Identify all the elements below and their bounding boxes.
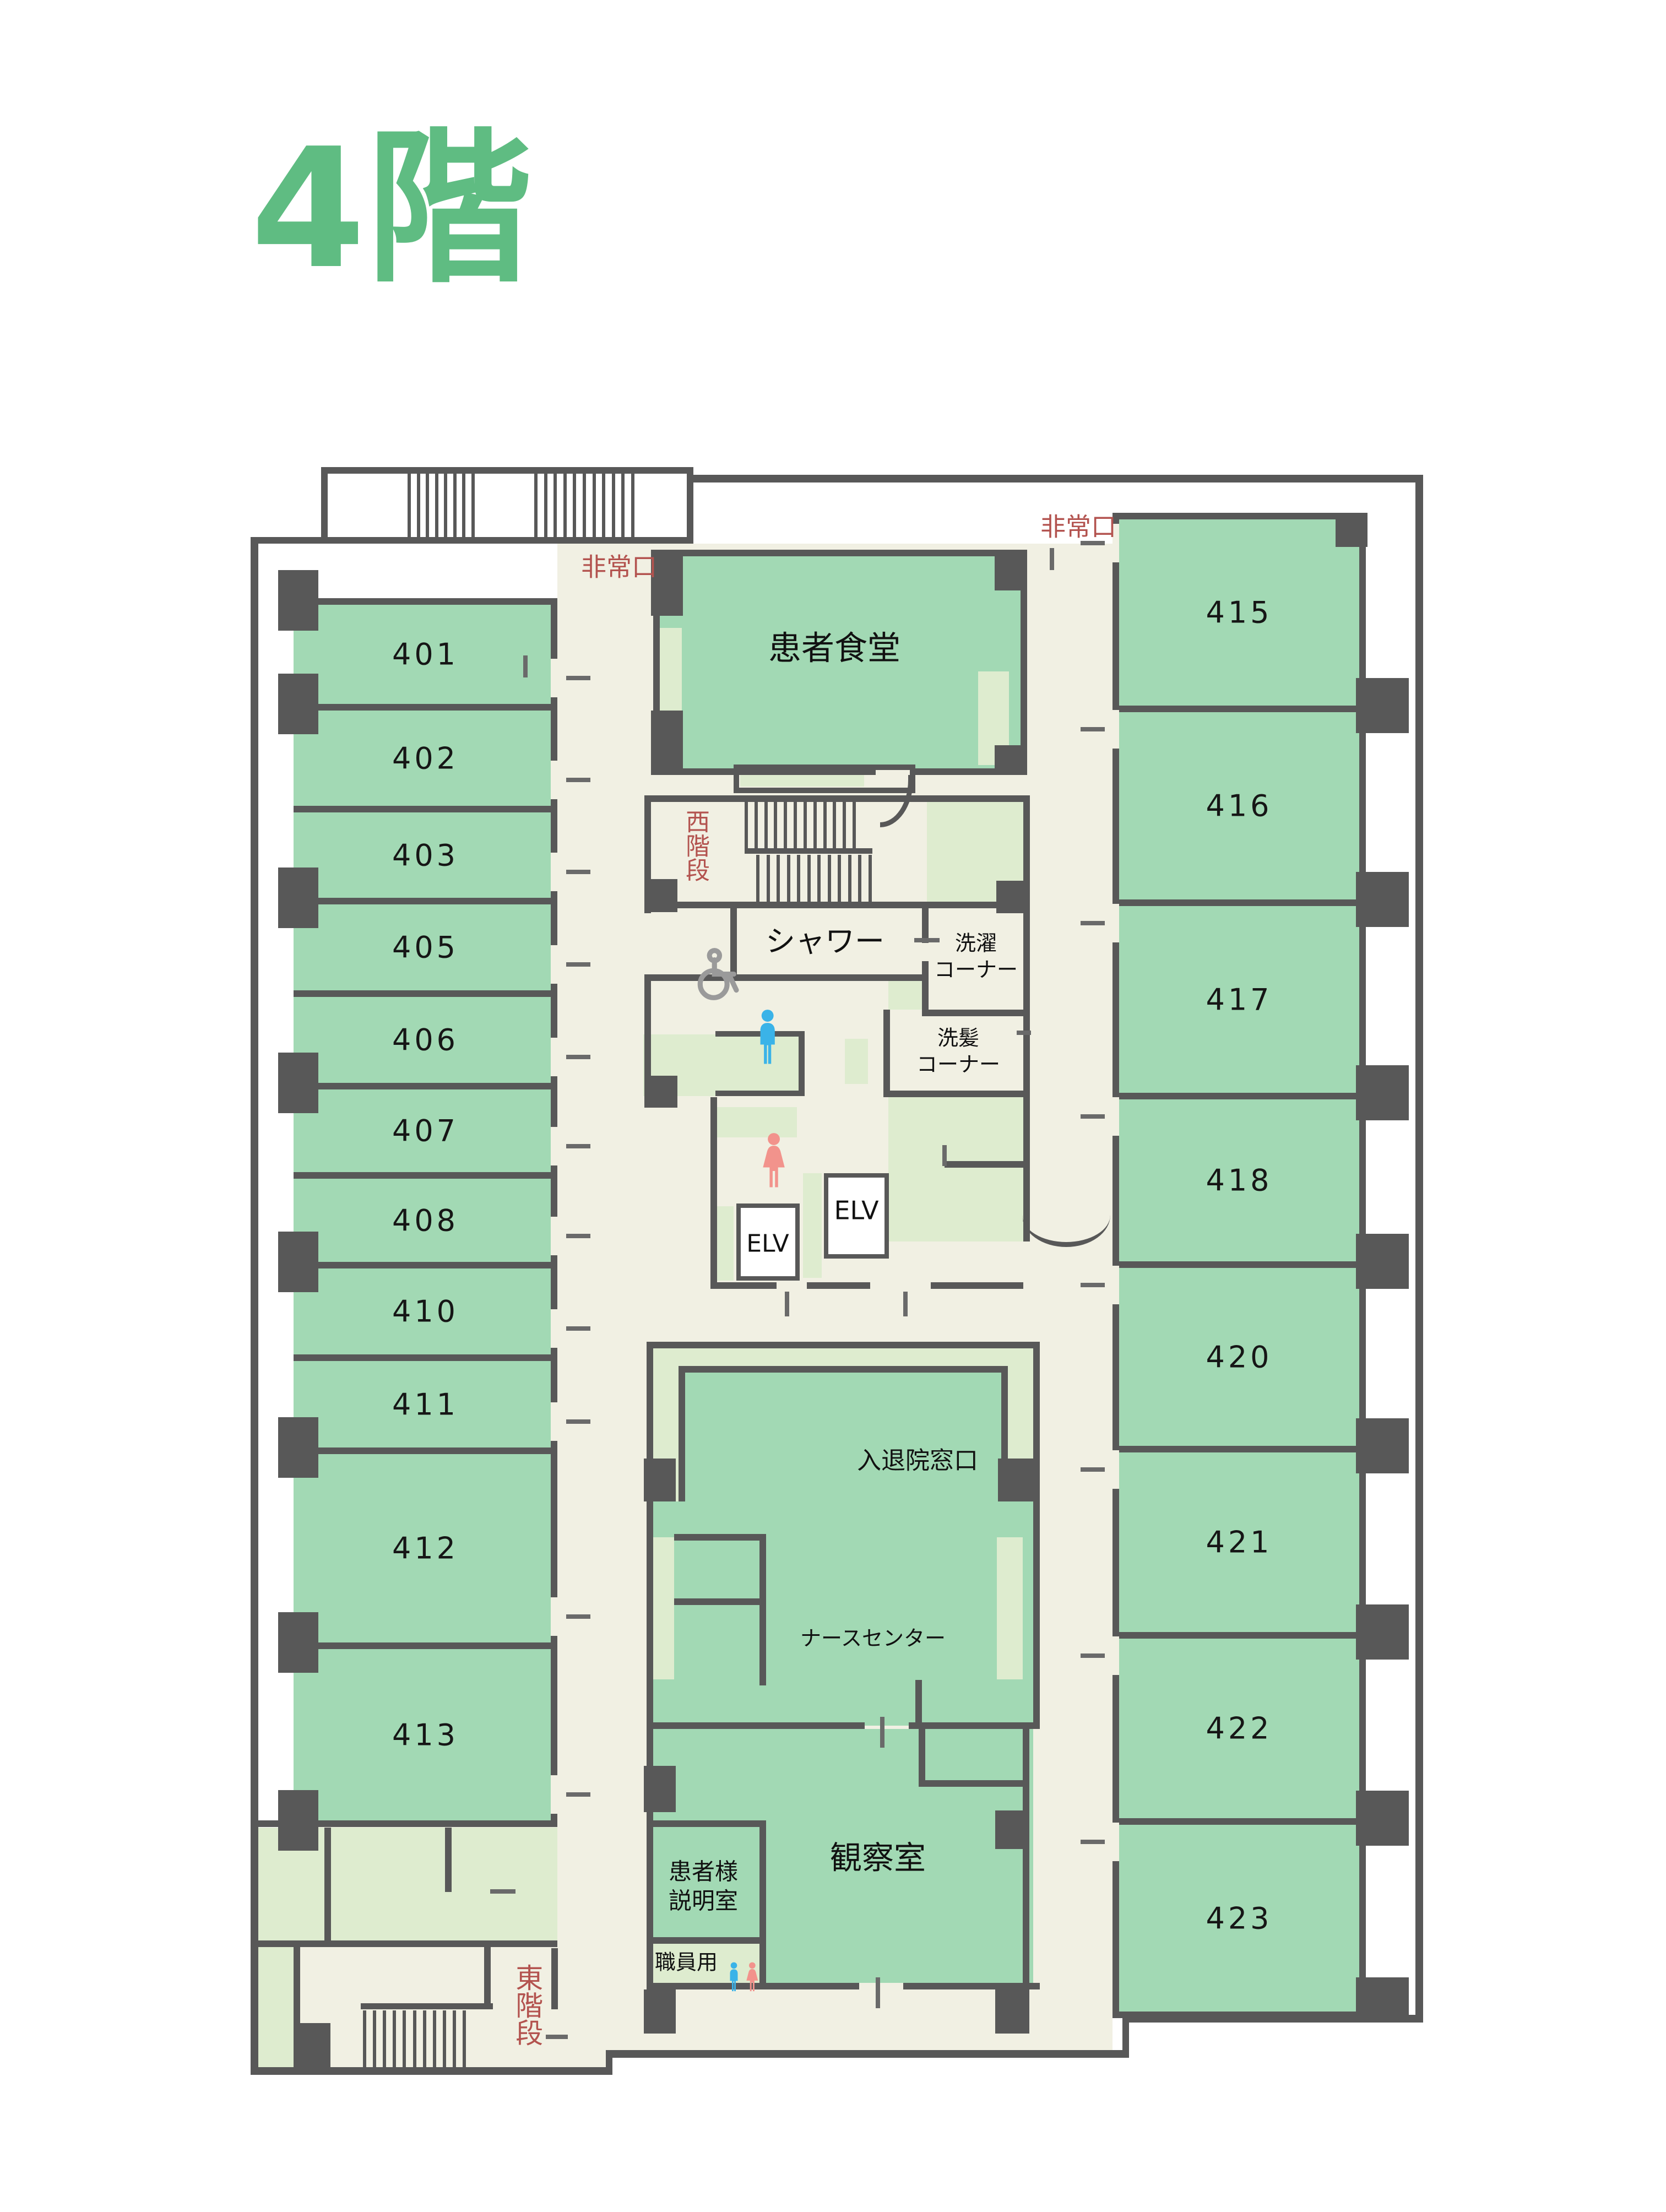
door-dash (1081, 727, 1105, 731)
wall (294, 704, 557, 711)
wall (644, 795, 1030, 802)
room-label-421: 421 (1206, 1525, 1272, 1560)
east-stairs-hatch (413, 2010, 416, 2067)
wall (647, 1820, 766, 1827)
wall (294, 1083, 557, 1089)
balcony-rail-hatch (602, 474, 605, 544)
wall (922, 902, 929, 943)
west-stairs-hatch (755, 802, 758, 850)
room-label-401: 401 (392, 637, 459, 672)
west-stairs-hatch (817, 855, 821, 902)
room-label-406: 406 (392, 1023, 459, 1058)
wall (294, 1642, 557, 1649)
wall (903, 1983, 1040, 1989)
room-label-420: 420 (1206, 1340, 1272, 1374)
balcony-rail-hatch (417, 474, 420, 544)
wall (734, 765, 915, 770)
door-gap (551, 853, 557, 891)
east-stairs-hatch (363, 2010, 366, 2067)
emergency-exit-west-label: 非常口 (581, 551, 657, 583)
balcony-rail-hatch (544, 474, 547, 544)
balcony-rail-hatch (563, 474, 567, 544)
pillar (278, 1232, 318, 1292)
pillar (1356, 1234, 1409, 1289)
west-stairs-hatch (823, 802, 827, 850)
balcony-rail-hatch (631, 474, 634, 544)
elv-surround-mid (803, 1173, 822, 1278)
wall (687, 467, 693, 544)
observation-room-label: 観察室 (830, 1838, 926, 1878)
east-stairs-hatch (423, 2010, 426, 2067)
wall (251, 537, 328, 544)
wall (1033, 1501, 1040, 1729)
wall (294, 598, 557, 605)
west-stairs-hatch (869, 855, 872, 902)
laundry-corner-label: 洗濯 コーナー (934, 931, 1018, 983)
wall (251, 537, 258, 2075)
balcony-rail-hatch (444, 474, 447, 544)
west-stairs-hatch (807, 855, 811, 902)
room-label-403: 403 (392, 838, 459, 872)
pillar (995, 1989, 1029, 2034)
west-stair-label: 西階段 (682, 809, 708, 882)
west-stairs-hatch (767, 855, 770, 902)
wall (759, 1534, 766, 1685)
wall (1113, 1261, 1366, 1268)
west-stairs-hatch (745, 802, 748, 850)
emergency-exit-east-label: 非常口 (1040, 511, 1116, 543)
wall (294, 1820, 557, 1827)
west-stairs-hatch (774, 802, 777, 850)
pillar (278, 868, 318, 928)
east-stairs-hatch (433, 2010, 436, 2067)
wall (321, 467, 693, 474)
door-dash (1081, 1653, 1105, 1658)
hairwash-lower-room (888, 1097, 1023, 1241)
west-stairs-hatch (843, 802, 846, 850)
room-label-411: 411 (392, 1387, 459, 1422)
wall (915, 1680, 922, 1722)
wall (484, 1947, 491, 2009)
west-stairs-hatch (787, 855, 790, 902)
pillar (1336, 513, 1367, 547)
balcony-rail-hatch (621, 474, 625, 544)
wall (294, 1447, 557, 1454)
pillar (995, 550, 1025, 590)
east-stairs-hatch (373, 2010, 376, 2067)
wall (710, 1097, 717, 1289)
east-stairs-hatch (443, 2010, 446, 2067)
west-stairs-hatch (804, 802, 807, 850)
door-dash (880, 1717, 884, 1748)
door-gap (551, 945, 557, 984)
west-stairs-hatch (777, 855, 780, 902)
pillar (278, 674, 318, 734)
door-dash (546, 2035, 568, 2039)
pillar (1356, 1418, 1409, 1473)
west-stairs-hatch (784, 802, 787, 850)
door-dash (566, 1614, 590, 1619)
wall (883, 1010, 890, 1097)
room-label-408: 408 (392, 1203, 459, 1238)
door-dash (785, 1292, 789, 1316)
balcony-rail-hatch (408, 474, 411, 544)
balcony-rail-hatch (612, 474, 615, 544)
wall (1415, 475, 1423, 2023)
pillar (995, 745, 1025, 775)
west-stairs-hatch (797, 855, 800, 902)
east-stairs-hatch (463, 2010, 466, 2067)
wall (321, 537, 693, 544)
pillar (998, 1459, 1040, 1501)
room-label-410: 410 (392, 1294, 459, 1329)
door-dash (566, 962, 590, 967)
door-gap (1113, 1097, 1119, 1136)
door-dash (566, 1055, 590, 1059)
room-label-423: 423 (1206, 1901, 1272, 1935)
wall (679, 1366, 685, 1501)
east-stairs-hatch (383, 2010, 386, 2067)
wall (679, 1366, 1008, 1373)
wall (1023, 795, 1030, 1241)
pillar (278, 570, 318, 631)
door-dash (566, 1792, 590, 1797)
wall (251, 2067, 612, 2075)
southwest-corner-room (257, 1947, 294, 2067)
east-stairs-hatch (393, 2010, 396, 2067)
door-dash (1081, 1467, 1105, 1472)
room-label-417: 417 (1206, 982, 1272, 1017)
balcony-rail-hatch (583, 474, 586, 544)
pillar (1356, 1065, 1409, 1120)
west-stairs-hatch (848, 855, 851, 902)
door-dash (1081, 921, 1105, 925)
door-dash (1081, 1840, 1105, 1844)
door-dash (566, 870, 590, 874)
pillar (644, 1459, 676, 1501)
wall (945, 1161, 1029, 1168)
pillar (278, 1053, 318, 1113)
door-gap (551, 1038, 557, 1076)
staff-toilet-label: 職員用 (655, 1949, 718, 1976)
east-stair-label: 東階段 (513, 1964, 542, 2046)
door-dash (566, 1419, 590, 1424)
wall (922, 961, 929, 1016)
west-stairs-hatch (764, 802, 768, 850)
nurse-center-label: ナースセンター (800, 1625, 946, 1652)
door-dash (523, 655, 528, 677)
toilet-mid-box (845, 1039, 868, 1084)
room-label-422: 422 (1206, 1711, 1272, 1746)
east-stairs-hatch (403, 2010, 406, 2067)
wall (294, 1262, 557, 1268)
door-dash (1081, 1283, 1105, 1287)
east-stairs-hatch (453, 2010, 456, 2067)
door-gap (551, 761, 557, 799)
balcony-rail-hatch (462, 474, 465, 544)
patient-briefing-room-label: 患者様 説明室 (669, 1858, 738, 1916)
wall (294, 1354, 557, 1361)
pillar (1356, 1977, 1409, 2018)
balcony-rail-hatch (534, 474, 538, 544)
nurse-window-strip-right (997, 1537, 1023, 1679)
door-dash (566, 1144, 590, 1148)
west-stairs-hatch (833, 802, 836, 850)
wall (1023, 1729, 1029, 1983)
door-gap (551, 1309, 557, 1348)
door-dash (942, 1145, 947, 1166)
west-stairs-hatch (838, 855, 841, 902)
wall (647, 1937, 766, 1944)
west-stairs-hatch (828, 855, 831, 902)
wall (919, 1729, 925, 1787)
wall (919, 1780, 1023, 1787)
pillar (644, 1766, 676, 1812)
wall (922, 1010, 1030, 1016)
wall (361, 2003, 493, 2009)
wall (647, 1501, 653, 1996)
wall (324, 1828, 331, 1940)
wall (1113, 513, 1366, 519)
admission-window-label: 入退院窓口 (857, 1446, 978, 1476)
wall (1113, 1818, 1366, 1825)
wall (294, 1172, 557, 1179)
west-stairs-hatch (794, 802, 797, 850)
door-dash (566, 1326, 590, 1331)
pillar (651, 711, 683, 775)
pillar (1356, 1604, 1409, 1660)
wall (693, 475, 1422, 482)
door-dash (876, 1977, 880, 2008)
wall (1113, 899, 1366, 906)
balcony-rail-hatch (453, 474, 457, 544)
room-label-418: 418 (1206, 1163, 1272, 1198)
balcony-rail-hatch (553, 474, 557, 544)
door-dash (1050, 548, 1054, 570)
wall (647, 1342, 1040, 1348)
balcony-rail-hatch (471, 474, 475, 544)
wall (710, 1282, 777, 1289)
pillar (294, 2023, 330, 2067)
pillar (1356, 872, 1409, 927)
nurse-center-room (685, 1373, 1001, 1505)
wall (644, 974, 929, 981)
shower-label: シャワー (766, 923, 884, 960)
hairwash-corner-label: 洗髪 コーナー (916, 1026, 1000, 1078)
door-gap (551, 1775, 557, 1814)
wall (883, 1091, 1023, 1097)
pillar (995, 1810, 1029, 1849)
dining-hall-label: 患者食堂 (768, 628, 900, 670)
wall (799, 1031, 805, 1096)
wall (715, 1091, 805, 1096)
wall (251, 1940, 557, 1947)
door-dash (490, 1889, 515, 1894)
room-label-415: 415 (1206, 595, 1272, 630)
west-stairs-hatch (813, 802, 817, 850)
pillar (644, 879, 677, 912)
elv-surround-low (717, 1206, 734, 1281)
wall (674, 1534, 759, 1541)
door-gap (551, 1127, 557, 1165)
balcony-rail-hatch (573, 474, 576, 544)
door-gap (551, 1402, 557, 1441)
door-dash (566, 1234, 590, 1238)
west-stairs-hatch (756, 855, 759, 902)
pillar (278, 1612, 318, 1673)
wall (321, 467, 328, 544)
room-label-413: 413 (392, 1717, 459, 1752)
wall (1113, 1632, 1366, 1639)
door-dash (566, 676, 590, 680)
west-stairs-hatch (853, 802, 856, 850)
balcony-rail-hatch (426, 474, 429, 544)
door-gap (1113, 1266, 1119, 1304)
balcony-rail-hatch (593, 474, 596, 544)
pillar (1356, 678, 1409, 733)
door-dash (566, 778, 590, 782)
floor-plan-page: 4階 4014024034054064074084104114124134154… (0, 0, 1666, 2212)
door-gap (1113, 710, 1119, 749)
wall (551, 1948, 558, 2009)
shower-side-box (888, 979, 925, 1010)
room-label-405: 405 (392, 930, 459, 965)
wall (294, 806, 557, 812)
door-gap (1113, 1450, 1119, 1489)
door-dash (1081, 1114, 1105, 1119)
floor-plan: 4014024034054064074084104114124134154164… (0, 0, 1666, 2212)
room-label-412: 412 (392, 1531, 459, 1566)
pillar (278, 1790, 318, 1851)
door-gap (551, 1597, 557, 1636)
room-label-402: 402 (392, 741, 459, 776)
room-label-416: 416 (1206, 789, 1272, 823)
west-stairs-hatch (858, 855, 861, 902)
wall (294, 990, 557, 997)
wall (1113, 1093, 1366, 1099)
pillar (1356, 1791, 1409, 1846)
wall (1113, 1446, 1366, 1452)
wall (294, 898, 557, 904)
pillar (996, 881, 1030, 913)
door-gap (551, 1217, 557, 1255)
wall (909, 1722, 1040, 1729)
wall (647, 1722, 865, 1729)
wall (759, 1820, 766, 1989)
balcony-rail-hatch (435, 474, 438, 544)
pillar (644, 1076, 677, 1108)
door-dash (1017, 1031, 1031, 1035)
wall (644, 902, 929, 908)
wall (931, 1282, 1023, 1289)
door-dash (903, 1292, 908, 1316)
pillar (278, 1417, 318, 1478)
pillar (644, 1989, 676, 2034)
room-label-407: 407 (392, 1114, 459, 1148)
door-gap (551, 659, 557, 697)
wall (807, 1282, 870, 1289)
elevator-1-label: ELV (746, 1229, 789, 1259)
wall (606, 2050, 1129, 2058)
wall (653, 550, 1027, 556)
elevator-2-label: ELV (834, 1195, 878, 1227)
door-gap (1113, 904, 1119, 942)
wall (445, 1828, 452, 1892)
wall (674, 1598, 759, 1605)
wall (294, 1947, 300, 2024)
door-gap (1113, 1823, 1119, 1861)
wall (1113, 2012, 1366, 2018)
door-gap (1113, 1636, 1119, 1675)
wall (1113, 706, 1366, 712)
